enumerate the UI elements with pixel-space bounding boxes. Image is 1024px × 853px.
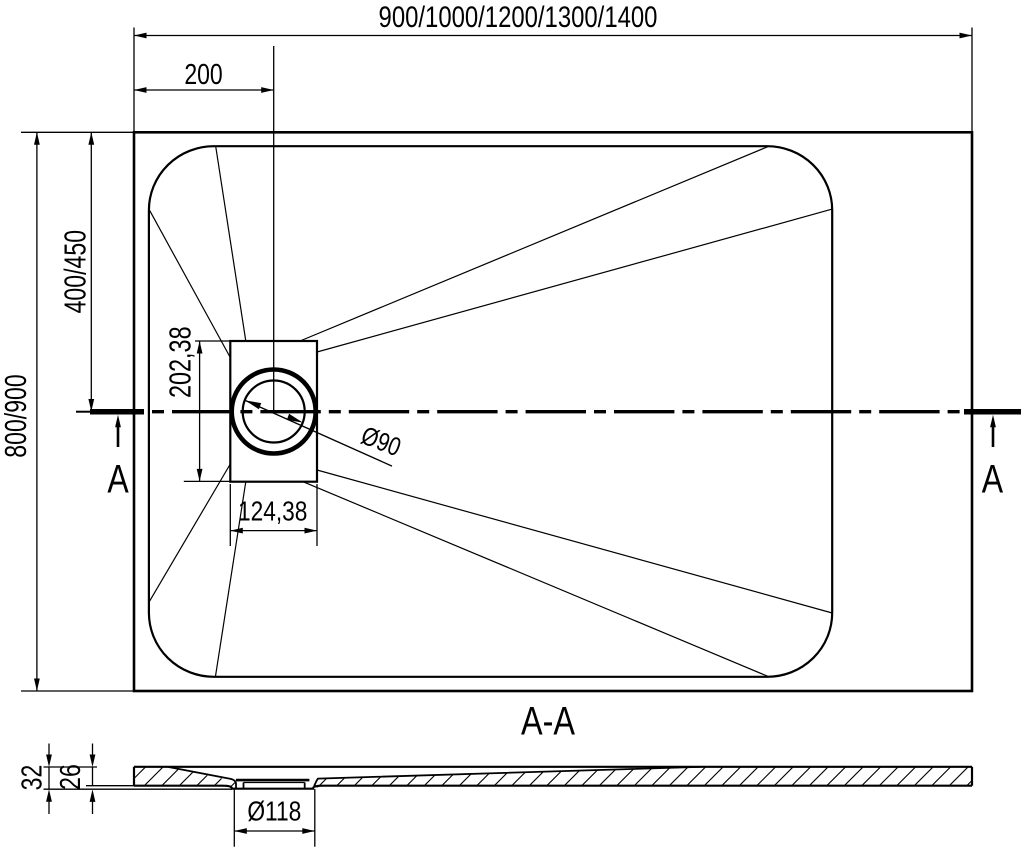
- svg-text:A-A: A-A: [521, 698, 576, 743]
- svg-text:32: 32: [17, 765, 48, 791]
- svg-text:124,38: 124,38: [238, 496, 307, 527]
- svg-text:Ø118: Ø118: [247, 796, 301, 827]
- svg-text:A: A: [982, 456, 1003, 501]
- svg-text:202,38: 202,38: [162, 326, 197, 398]
- svg-text:400/450: 400/450: [57, 230, 92, 313]
- svg-text:200: 200: [184, 60, 222, 91]
- svg-text:900/1000/1200/1300/1400: 900/1000/1200/1300/1400: [379, 0, 658, 33]
- svg-text:800/900: 800/900: [0, 374, 33, 457]
- svg-text:26: 26: [56, 764, 87, 790]
- svg-text:A: A: [107, 456, 128, 501]
